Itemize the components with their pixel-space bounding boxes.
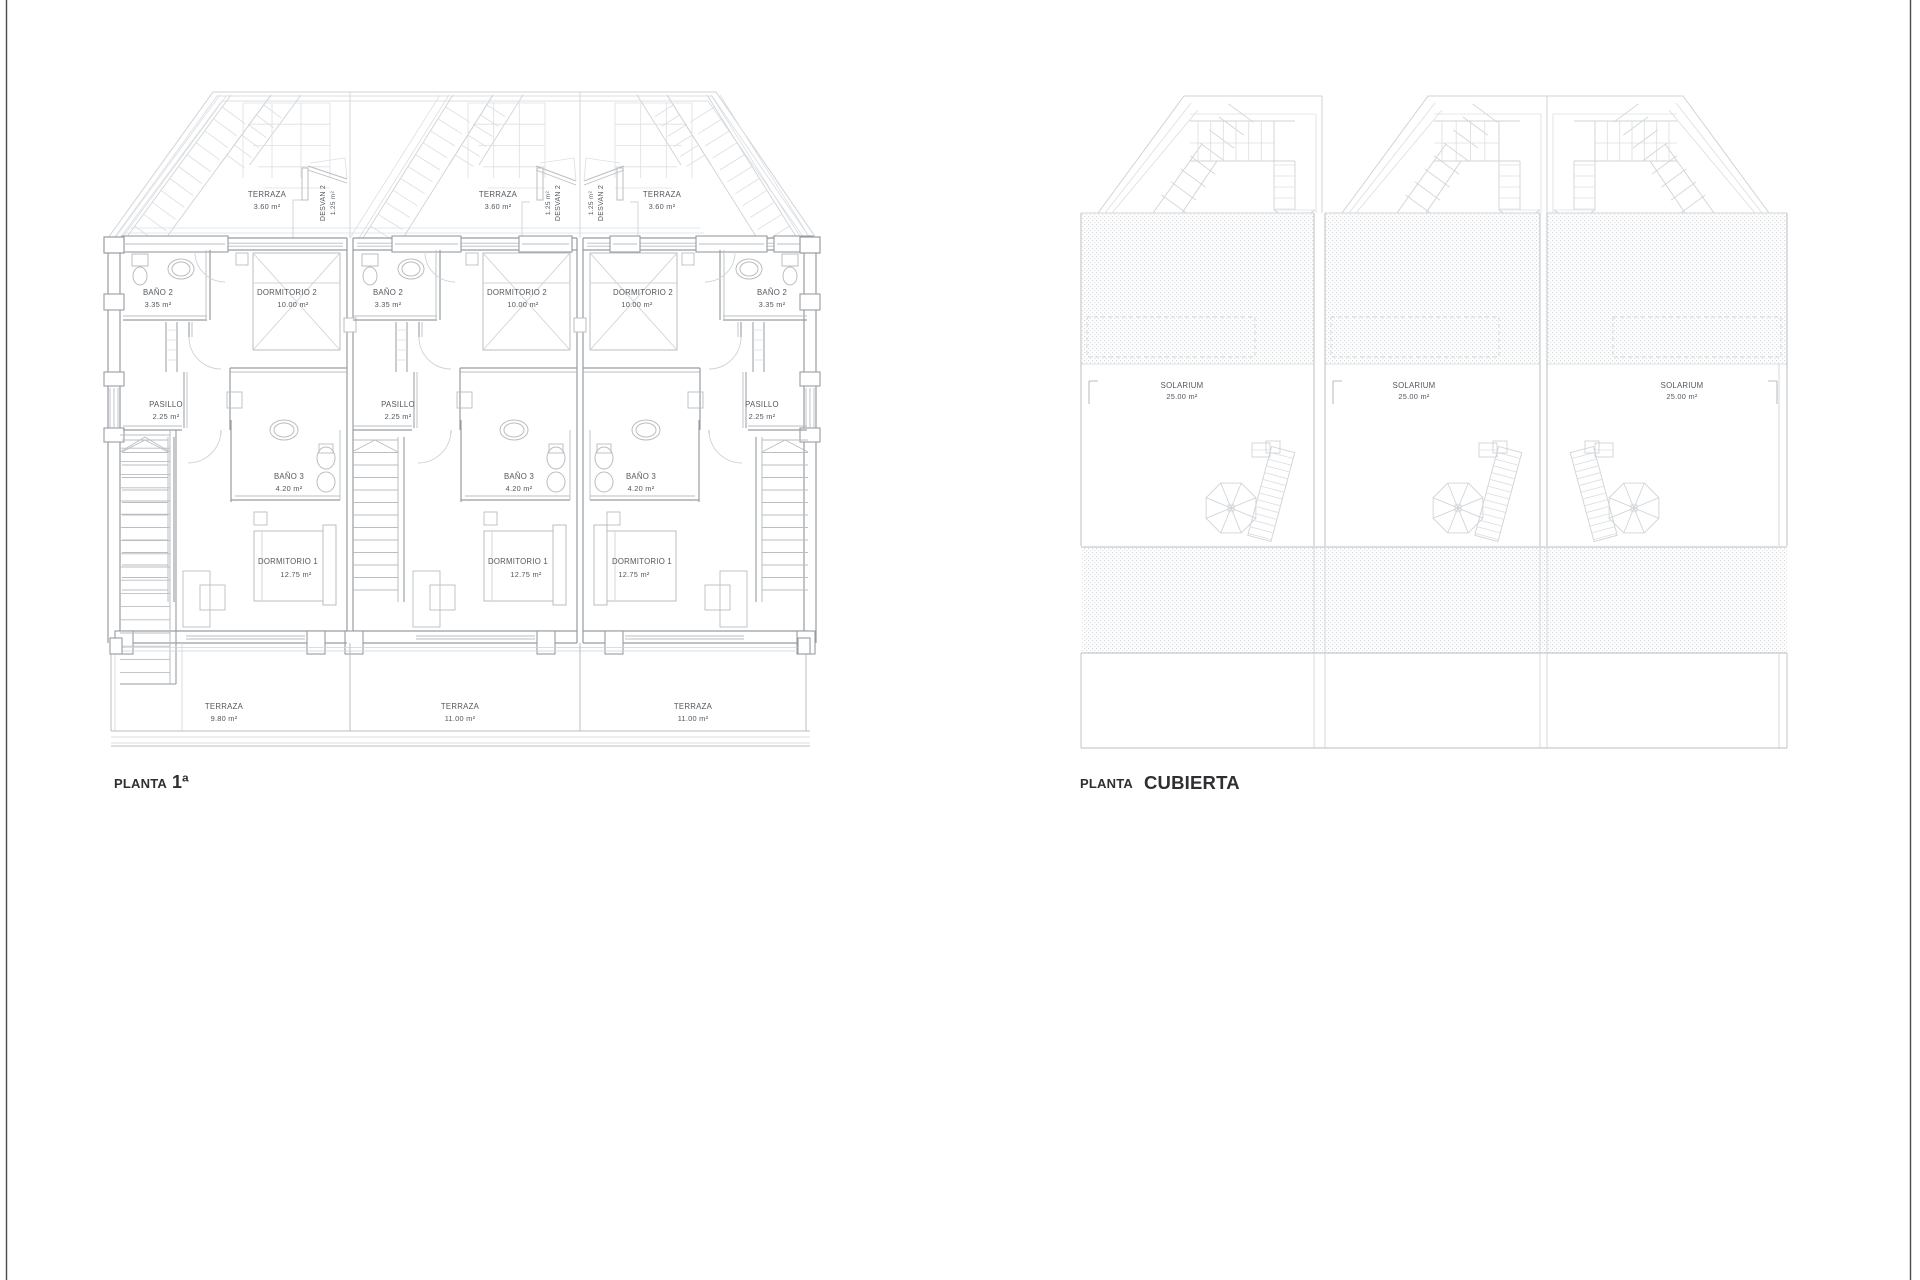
- svg-text:9.80 m²: 9.80 m²: [211, 714, 238, 723]
- svg-text:PASILLO: PASILLO: [149, 400, 183, 409]
- svg-text:PASILLO: PASILLO: [381, 400, 415, 409]
- svg-text:PLANTA: PLANTA: [114, 776, 167, 791]
- svg-text:SOLARIUM: SOLARIUM: [1161, 381, 1204, 390]
- svg-text:DORMITORIO 2: DORMITORIO 2: [613, 288, 673, 297]
- svg-text:BAÑO 2: BAÑO 2: [143, 288, 173, 297]
- svg-text:12.75 m²: 12.75 m²: [510, 570, 541, 579]
- svg-text:1.25 m²: 1.25 m²: [588, 190, 595, 215]
- svg-text:DORMITORIO 1: DORMITORIO 1: [258, 557, 318, 566]
- svg-text:25.00 m²: 25.00 m²: [1666, 392, 1697, 401]
- svg-text:10.00 m²: 10.00 m²: [507, 300, 538, 309]
- svg-text:3.35 m²: 3.35 m²: [375, 300, 402, 309]
- svg-text:DORMITORIO 2: DORMITORIO 2: [487, 288, 547, 297]
- svg-text:PASILLO: PASILLO: [745, 400, 779, 409]
- svg-text:2.25 m²: 2.25 m²: [749, 412, 776, 421]
- svg-text:BAÑO 3: BAÑO 3: [274, 472, 304, 481]
- svg-text:DORMITORIO 1: DORMITORIO 1: [612, 557, 672, 566]
- svg-text:TERRAZA: TERRAZA: [674, 702, 713, 711]
- svg-text:PLANTA: PLANTA: [1080, 776, 1133, 791]
- svg-text:BAÑO 2: BAÑO 2: [373, 288, 403, 297]
- svg-text:4.20 m²: 4.20 m²: [276, 484, 303, 493]
- svg-text:25.00 m²: 25.00 m²: [1166, 392, 1197, 401]
- svg-text:2.25 m²: 2.25 m²: [153, 412, 180, 421]
- svg-text:10.00 m²: 10.00 m²: [621, 300, 652, 309]
- svg-text:4.20 m²: 4.20 m²: [506, 484, 533, 493]
- svg-text:DESVAN 2: DESVAN 2: [555, 185, 562, 221]
- svg-text:1.25 m²: 1.25 m²: [545, 190, 552, 215]
- svg-text:DESVAN 2: DESVAN 2: [598, 185, 605, 221]
- svg-text:3.60 m²: 3.60 m²: [254, 202, 281, 211]
- svg-text:BAÑO 2: BAÑO 2: [757, 288, 787, 297]
- svg-text:DORMITORIO 2: DORMITORIO 2: [257, 288, 317, 297]
- svg-text:TERRAZA: TERRAZA: [248, 190, 287, 199]
- svg-text:11.00 m²: 11.00 m²: [678, 714, 709, 723]
- svg-text:DORMITORIO 1: DORMITORIO 1: [488, 557, 548, 566]
- svg-text:TERRAZA: TERRAZA: [479, 190, 518, 199]
- svg-text:1.25 m²: 1.25 m²: [330, 190, 337, 215]
- svg-text:3.35 m²: 3.35 m²: [145, 300, 172, 309]
- svg-text:BAÑO 3: BAÑO 3: [626, 472, 656, 481]
- svg-text:TERRAZA: TERRAZA: [643, 190, 682, 199]
- svg-text:3.60 m²: 3.60 m²: [649, 202, 676, 211]
- svg-text:TERRAZA: TERRAZA: [205, 702, 244, 711]
- svg-text:DESVAN 2: DESVAN 2: [320, 185, 327, 221]
- svg-text:TERRAZA: TERRAZA: [441, 702, 480, 711]
- svg-text:BAÑO 3: BAÑO 3: [504, 472, 534, 481]
- svg-text:1ª: 1ª: [172, 772, 189, 792]
- svg-text:CUBIERTA: CUBIERTA: [1144, 772, 1240, 793]
- svg-text:SOLARIUM: SOLARIUM: [1661, 381, 1704, 390]
- svg-text:10.00 m²: 10.00 m²: [277, 300, 308, 309]
- svg-text:3.60 m²: 3.60 m²: [485, 202, 512, 211]
- svg-text:25.00 m²: 25.00 m²: [1398, 392, 1429, 401]
- svg-text:4.20 m²: 4.20 m²: [628, 484, 655, 493]
- svg-text:3.35 m²: 3.35 m²: [759, 300, 786, 309]
- svg-text:11.00 m²: 11.00 m²: [445, 714, 476, 723]
- svg-text:12.75 m²: 12.75 m²: [618, 570, 649, 579]
- svg-text:12.75 m²: 12.75 m²: [280, 570, 311, 579]
- svg-text:SOLARIUM: SOLARIUM: [1393, 381, 1436, 390]
- svg-text:2.25 m²: 2.25 m²: [385, 412, 412, 421]
